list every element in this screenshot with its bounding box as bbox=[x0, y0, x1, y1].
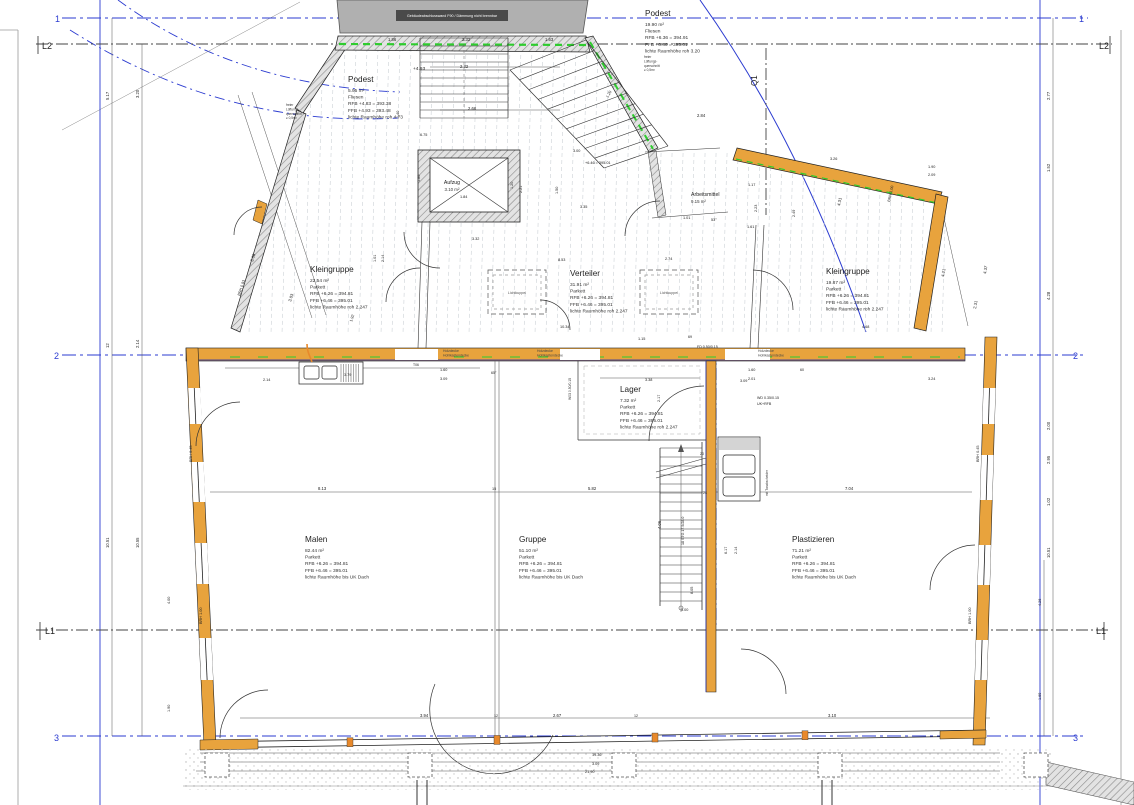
dim-label: 2.17 bbox=[657, 395, 661, 402]
room-detail: 5.95 m² bbox=[348, 88, 365, 94]
dim-label: BRH 0.45 bbox=[976, 446, 980, 462]
room-detail: 19.87 m² bbox=[826, 280, 845, 286]
room-detail: lichte Raumhöhe bis UK Dach bbox=[519, 574, 583, 580]
dim-label: 1.00 bbox=[681, 608, 688, 612]
dim-label: 20 bbox=[700, 452, 704, 456]
note-label: Lüftungs- bbox=[286, 107, 299, 111]
note-label: Hohlkastendecke bbox=[758, 354, 784, 358]
dim-label: 1.20 bbox=[605, 90, 612, 98]
room-detail: Parkett bbox=[570, 289, 586, 295]
dim-label: 1.20 bbox=[510, 182, 514, 189]
room-detail: Parkett bbox=[826, 287, 842, 293]
room-detail: lichte Raumhöhe bis UK Dach bbox=[792, 574, 856, 580]
dim-label: 24 bbox=[703, 491, 707, 495]
axis-label: L1 bbox=[1096, 626, 1106, 636]
note-label: Lichtkuppel bbox=[660, 291, 678, 295]
dim-label: 4.26 bbox=[1038, 599, 1042, 606]
dim-label: 2.74 bbox=[665, 257, 672, 261]
dim-label: 12 bbox=[634, 714, 638, 718]
axis-label: 1 bbox=[1079, 14, 1084, 24]
dim-label: 15 bbox=[492, 487, 496, 491]
note-label: Lichtkuppel bbox=[508, 291, 526, 295]
dim-label: 3.09 bbox=[592, 762, 599, 766]
room-detail: FFB +6.46 = 395.01 bbox=[570, 302, 613, 308]
dim-label: 3.24 bbox=[928, 377, 935, 381]
room-detail: RFB +6.26 = 394.81 bbox=[570, 295, 614, 301]
dim-label: 1.60 bbox=[440, 368, 447, 372]
room-name: Gruppe bbox=[519, 535, 547, 544]
room-name: Verteiler bbox=[570, 269, 600, 278]
room-detail: 71.21 m² bbox=[792, 548, 811, 554]
dim-label: FD 0.50/0.15 bbox=[697, 345, 718, 349]
dim-label: 1.60 bbox=[748, 368, 755, 372]
dim-label: 1.17 bbox=[748, 183, 755, 187]
dim-label: 3.10 bbox=[828, 713, 837, 718]
dim-label: 2.14 bbox=[263, 378, 270, 382]
room-detail: 82.44 m² bbox=[305, 548, 324, 554]
dim-label: 3.35 bbox=[580, 205, 587, 209]
room-detail: lichte Raumhöhe roh 2.247 bbox=[310, 304, 368, 310]
window-openings bbox=[188, 349, 995, 747]
dim-label: 1.01 bbox=[373, 255, 377, 262]
room-detail: RFB +6.26 = 394.81 bbox=[305, 561, 349, 567]
terrace bbox=[183, 748, 1134, 805]
dim-label: 8.13 bbox=[318, 486, 327, 491]
dim-label: 2.23 bbox=[754, 205, 758, 212]
room-detail: RFB +6.26 = 394.81 bbox=[310, 291, 354, 297]
room-detail: FFB +6.46 = 395.01 bbox=[826, 300, 869, 306]
room-detail: lichte Raumhöhe roh 2.247 bbox=[570, 308, 628, 314]
dimension-lines bbox=[112, 18, 1053, 771]
room-detail: RFB +6.26 = 394.81 bbox=[620, 411, 664, 417]
note-label: Hohlkastendecke bbox=[537, 354, 563, 358]
dim-label: 8.05 bbox=[690, 587, 694, 594]
axis-label: 3 bbox=[1073, 733, 1078, 743]
note-label: freier bbox=[644, 55, 652, 59]
note-label: Holzdecke bbox=[443, 349, 459, 353]
axis-label: 3 bbox=[54, 733, 59, 743]
dim-label: 1.90 bbox=[167, 705, 171, 712]
note-label: ≥ 0,5m² bbox=[644, 68, 655, 72]
room-detail: Parkett bbox=[310, 285, 326, 291]
dim-label: 7.04 bbox=[845, 486, 854, 491]
note-label: querschnitt bbox=[644, 64, 660, 68]
room-name: Arbeitsmittel bbox=[691, 192, 720, 198]
dim-label: 2.32 bbox=[460, 64, 469, 69]
axis-label: L2 bbox=[42, 41, 52, 51]
dim-label: 6.75 bbox=[420, 133, 427, 137]
dim-label: 1.92 bbox=[349, 314, 355, 322]
dim-label: 4.31 bbox=[836, 197, 843, 207]
dim-label: 19.36 bbox=[592, 753, 602, 757]
dim-label: T06 bbox=[413, 363, 419, 367]
room-detail: FFB +6.46 = 395.01 bbox=[310, 298, 353, 304]
room-detail: 22.54 m² bbox=[310, 278, 329, 284]
dim-label: 3.09 bbox=[440, 377, 447, 381]
room-detail: 19.90 m² bbox=[645, 22, 664, 28]
room-name: Aufzug bbox=[444, 180, 460, 186]
dim-label: 3.38 bbox=[645, 378, 652, 382]
axis-label: Q1 bbox=[750, 75, 759, 86]
note-label: querschnitt bbox=[286, 112, 302, 116]
dim-label: 1.01 bbox=[683, 216, 690, 220]
floor-joist-lines bbox=[238, 48, 950, 334]
room-detail: RFB +6.26 = 394.81 bbox=[792, 561, 836, 567]
dim-label: 10.51 bbox=[1046, 547, 1051, 558]
dim-label: WD 0.35/0.15 bbox=[757, 396, 779, 400]
room-name: Podest bbox=[348, 75, 374, 84]
dim-label: 5.17 bbox=[105, 91, 110, 100]
elevator bbox=[418, 150, 520, 222]
dim-label: 2.14 bbox=[381, 255, 385, 262]
dim-label: 12 bbox=[494, 714, 498, 718]
room-detail: RFB +6.36 = 394.91 bbox=[645, 35, 689, 41]
dim-label: 10.51 bbox=[105, 537, 110, 548]
room-name: Malen bbox=[305, 535, 328, 544]
room-detail: FFB +4.93 = 393.48 bbox=[348, 108, 391, 114]
note-label: Holzdecke bbox=[758, 349, 774, 353]
dim-label: 2.77 bbox=[1046, 91, 1051, 100]
room-detail: 3.10 m² bbox=[445, 187, 460, 192]
dim-label: 1.15 bbox=[638, 337, 645, 341]
dim-label: 4.21 bbox=[940, 268, 946, 278]
dim-label: 3.32 bbox=[472, 237, 479, 241]
axis-label: 2 bbox=[54, 351, 59, 361]
dim-label: 1.02 bbox=[1046, 497, 1051, 506]
dim-label: BRH 1.00 bbox=[199, 608, 203, 624]
dim-label: BRH 0.45 bbox=[189, 446, 193, 462]
room-level: +4.93 bbox=[413, 66, 425, 72]
dim-label: +6.46 = 395.01 bbox=[585, 161, 611, 165]
dim-label: 1.61 bbox=[747, 225, 754, 229]
dim-label: 6.17 bbox=[724, 547, 728, 554]
axis-label: 2 bbox=[1073, 351, 1078, 361]
room-name: Lager bbox=[620, 385, 641, 394]
dim-label: 10.55 bbox=[135, 537, 140, 548]
floor-plan-page: 11L2L222L1L133Q15.173.20122.1410.5110.55… bbox=[0, 0, 1134, 805]
room-detail: FFB +6.46 = 395.01 bbox=[792, 568, 835, 574]
room-detail: RFB +6.26 = 394.81 bbox=[826, 293, 870, 299]
note-label: Holzdecke bbox=[537, 349, 553, 353]
room-detail: lichte Raumhöhe roh 2.247 bbox=[826, 306, 884, 312]
dim-label: 2.01 bbox=[748, 377, 755, 381]
dim-label: 4.68 bbox=[862, 325, 869, 329]
dim-label: 12 bbox=[105, 343, 110, 348]
dim-label: W03 0.50/0.15 bbox=[568, 378, 572, 400]
dim-label: 4.06 bbox=[657, 520, 662, 529]
dim-label: 60 bbox=[800, 368, 804, 372]
room-name: Kleingruppe bbox=[826, 267, 870, 276]
dim-label: 2.31 bbox=[972, 300, 978, 310]
dim-label: 4.00 bbox=[167, 597, 171, 604]
dim-label: 2.66 bbox=[468, 106, 477, 111]
room-detail: FFB +6.46 = 395.01 bbox=[519, 568, 562, 574]
dim-label: 2.14 bbox=[135, 339, 140, 348]
dim-label: 18 STG 17.5/28.0 bbox=[681, 517, 685, 545]
dim-label: 3.94 bbox=[420, 713, 429, 718]
room-detail: FFB +6.46 = 395.01 bbox=[305, 568, 348, 574]
fixture-hatch-lines bbox=[341, 364, 759, 449]
dim-label: 4.28 bbox=[1046, 291, 1051, 300]
dim-label: 2.49 bbox=[792, 210, 796, 217]
note-label: mit Tonabscheider bbox=[765, 469, 769, 496]
note-label: Gebäudeabschlusswand F90 / Dämmung nicht… bbox=[407, 14, 498, 18]
dim-label: 3.03 bbox=[287, 292, 294, 302]
room-name: Plastizieren bbox=[792, 535, 835, 544]
dim-label: 2.67 bbox=[553, 713, 562, 718]
dim-label: 1.80 bbox=[417, 175, 421, 182]
room-detail: RFB +6.26 = 394.81 bbox=[519, 561, 563, 567]
room-detail: lichte Raumhöhe roh 3.20 bbox=[645, 48, 700, 54]
dim-label: 65° bbox=[491, 371, 497, 375]
note-label: Lüftungs- bbox=[644, 59, 657, 63]
note-label: Hohlkastendecke bbox=[443, 354, 469, 358]
room-detail: Fliesen bbox=[348, 95, 364, 101]
room-detail: Parkett bbox=[792, 555, 808, 561]
room-detail: 31.91 m² bbox=[570, 282, 589, 288]
dim-label: UK+RFB bbox=[757, 402, 772, 406]
dim-label: 69 bbox=[688, 335, 692, 339]
dim-label: 10.34 bbox=[560, 325, 570, 329]
dim-label: 3.79 bbox=[344, 373, 351, 377]
room-detail: FFB +6.46 = 395.01 bbox=[645, 42, 688, 48]
dim-label: 3.00 bbox=[573, 149, 580, 153]
dim-label: 3.20 bbox=[135, 89, 140, 98]
axis-label: L2 bbox=[1099, 41, 1109, 51]
dim-label: 2.00 bbox=[1046, 421, 1051, 430]
dim-label: 1.90 bbox=[928, 165, 935, 169]
axis-label: L1 bbox=[45, 626, 55, 636]
room-detail: lichte Raumhöhe bis UK Dach bbox=[305, 574, 369, 580]
room-detail: Parkett bbox=[620, 405, 636, 411]
dim-label: 53° bbox=[711, 218, 717, 222]
dim-label: 1.52 bbox=[1046, 163, 1051, 172]
room-detail: lichte Raumhöhe roh 2.247 bbox=[620, 424, 678, 430]
clay-sink-unit bbox=[718, 437, 760, 501]
axis-label: 1 bbox=[55, 14, 60, 24]
room-detail: lichte Raumhöhe roh 4.73 bbox=[348, 114, 403, 120]
dim-label: 21.90 bbox=[585, 770, 595, 774]
note-label: ≥ 0,5m² bbox=[286, 116, 297, 120]
dim-label: 2.84 bbox=[697, 113, 706, 118]
room-detail: RFB +4.83 = 393.38 bbox=[348, 101, 392, 107]
dim-label: 2.09 bbox=[928, 173, 935, 177]
dim-label: 1.86 bbox=[388, 37, 397, 42]
dim-label: 1.69 bbox=[1038, 693, 1042, 700]
room-detail: 51.10 m² bbox=[519, 548, 538, 554]
dim-label: 2.21 bbox=[519, 186, 523, 193]
dim-label: 4.37 bbox=[982, 265, 988, 275]
room-name: Podest bbox=[645, 9, 671, 18]
dim-label: 8.53 bbox=[558, 258, 565, 262]
room-detail: FFB +6.46 = 395.01 bbox=[620, 418, 663, 424]
dim-label: 2.14 bbox=[734, 547, 738, 554]
room-name: Kleingruppe bbox=[310, 265, 354, 274]
dim-label: 5.82 bbox=[588, 486, 597, 491]
room-detail: Fliesen bbox=[645, 29, 661, 35]
room-detail: Parkett bbox=[305, 555, 321, 561]
dim-label: 3.26 bbox=[830, 157, 837, 161]
room-detail: 9.15 m² bbox=[691, 199, 706, 204]
room-detail: Parkett bbox=[519, 555, 535, 561]
sheet-frame bbox=[0, 30, 1121, 805]
dim-label: 1.50 bbox=[555, 187, 559, 194]
dim-label: 3.09 bbox=[740, 379, 747, 383]
room-detail: 7.32 m² bbox=[620, 398, 637, 404]
dim-label: 1.84 bbox=[460, 195, 467, 199]
dim-label: 2.95 bbox=[1046, 455, 1051, 464]
floor-plan-drawing: 11L2L222L1L133Q15.173.20122.1410.5110.55… bbox=[0, 0, 1134, 805]
dim-label: BRH 1.00 bbox=[968, 608, 972, 624]
dim-label: 1.63 bbox=[545, 37, 554, 42]
dim-label: 2.32 bbox=[462, 37, 471, 42]
note-label: freier bbox=[286, 103, 294, 107]
